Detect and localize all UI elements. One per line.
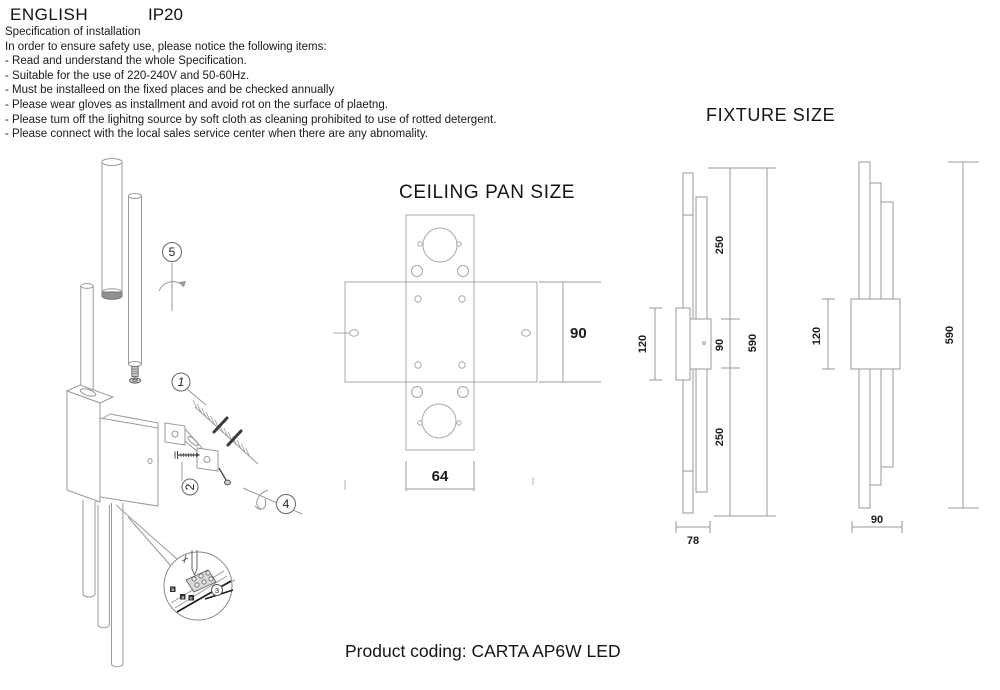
ceiling-pan-width-dim: 64 xyxy=(432,468,449,485)
hook-icon xyxy=(255,490,268,509)
front-width-dim: 90 xyxy=(871,514,883,526)
front-plate-height-dim: 120 xyxy=(811,327,823,345)
lamp-tube-threaded xyxy=(129,194,142,384)
step4-number: 4 xyxy=(283,497,290,511)
step4-marker: 4 xyxy=(243,488,302,514)
side-lower-tube-dim: 250 xyxy=(714,428,726,446)
wall-mount-box xyxy=(67,385,158,506)
side-center-dim: 90 xyxy=(714,339,726,351)
front-total-height-dim: 590 xyxy=(944,326,956,344)
spec-sheet-page: ENGLISH IP20 Specification of installati… xyxy=(0,0,1000,690)
side-total-height-dim: 590 xyxy=(747,334,759,352)
bracket-screw-angled xyxy=(219,468,231,485)
terminal-label-a: a xyxy=(182,594,185,599)
side-depth-dim: 78 xyxy=(687,535,699,547)
fixture-size-diagram: 120 250 90 250 590 78 120 xyxy=(637,162,979,547)
installation-diagram: 5 1 xyxy=(67,159,302,667)
wiring-detail: b a c 3 xyxy=(116,505,235,620)
step5-marker: 5 xyxy=(159,243,186,312)
step5-number: 5 xyxy=(169,245,176,259)
step2-number: 2 xyxy=(183,483,197,490)
ceiling-pan-plates xyxy=(333,215,537,450)
bracket-screw-horizontal xyxy=(175,451,200,459)
ceiling-pan-diagram: 90 64 xyxy=(333,215,601,491)
fixture-front-view xyxy=(822,162,979,533)
mounting-bracket xyxy=(165,423,218,471)
terminal-label-c: c xyxy=(190,595,193,600)
step1-marker: 1 xyxy=(172,373,206,405)
lamp-tubes-lower xyxy=(83,500,123,667)
lamp-tube-large xyxy=(102,159,122,300)
step1-number: 1 xyxy=(178,375,185,389)
terminal-label-b: b xyxy=(171,587,174,592)
side-upper-tube-dim: 250 xyxy=(714,236,726,254)
ceiling-pan-dimensions xyxy=(345,282,601,491)
step3-number: 3 xyxy=(215,586,219,595)
lamp-tube-into-box xyxy=(81,284,93,390)
technical-drawing-canvas: 5 1 xyxy=(0,0,1000,690)
ceiling-pan-height-dim: 90 xyxy=(570,325,587,342)
side-plate-height-dim: 120 xyxy=(637,335,649,353)
step2-marker: 2 xyxy=(182,462,198,495)
